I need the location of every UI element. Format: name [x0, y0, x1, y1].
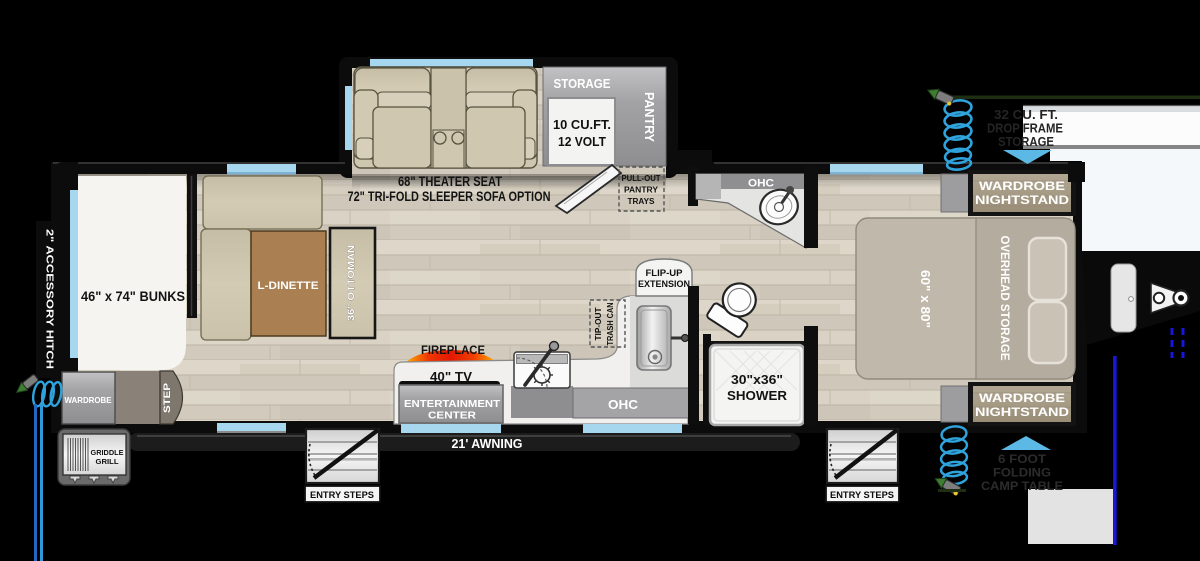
svg-text:PANTRY: PANTRY: [624, 185, 658, 195]
svg-text:TIP-OUT: TIP-OUT: [593, 307, 603, 341]
svg-text:ENTERTAINMENT: ENTERTAINMENT: [404, 399, 500, 410]
svg-text:SHOWER: SHOWER: [727, 389, 787, 403]
svg-text:STEP: STEP: [162, 382, 173, 413]
svg-text:PULL-OUT: PULL-OUT: [622, 173, 662, 183]
svg-text:FIREPLACE: FIREPLACE: [421, 343, 485, 357]
svg-text:DROP FRAME: DROP FRAME: [987, 122, 1063, 136]
svg-text:GRIDDLE: GRIDDLE: [91, 448, 124, 457]
svg-text:68" THEATER SEAT: 68" THEATER SEAT: [398, 174, 503, 189]
svg-text:GRILL: GRILL: [96, 457, 119, 466]
svg-text:WARDROBE: WARDROBE: [65, 396, 113, 405]
svg-text:STORAGE: STORAGE: [554, 77, 611, 91]
svg-text:46" x 74" BUNKS: 46" x 74" BUNKS: [81, 289, 185, 304]
svg-text:36" OTTOMAN: 36" OTTOMAN: [346, 245, 357, 321]
svg-text:30"x36": 30"x36": [731, 373, 783, 387]
svg-text:6 FOOT: 6 FOOT: [998, 452, 1047, 466]
svg-text:EXTENSION: EXTENSION: [638, 279, 690, 289]
svg-text:NIGHTSTAND: NIGHTSTAND: [975, 407, 1069, 419]
svg-text:FLIP-UP: FLIP-UP: [646, 268, 683, 278]
svg-text:OHC: OHC: [748, 178, 774, 190]
svg-text:WARDROBE: WARDROBE: [979, 393, 1065, 405]
svg-text:TRAYS: TRAYS: [628, 196, 655, 206]
svg-text:72" TRI-FOLD SLEEPER SOFA OPTI: 72" TRI-FOLD SLEEPER SOFA OPTION: [348, 189, 551, 204]
svg-text:OHC: OHC: [608, 397, 639, 412]
svg-text:ENTRY STEPS: ENTRY STEPS: [830, 490, 895, 501]
svg-text:10 CU.FT.: 10 CU.FT.: [553, 118, 611, 132]
svg-text:32 CU. FT.: 32 CU. FT.: [994, 108, 1058, 122]
svg-text:NIGHTSTAND: NIGHTSTAND: [975, 195, 1069, 207]
svg-text:STORAGE: STORAGE: [998, 135, 1054, 149]
svg-text:12 VOLT: 12 VOLT: [558, 135, 606, 149]
svg-text:60" x 80": 60" x 80": [918, 270, 933, 328]
svg-text:PANTRY: PANTRY: [642, 92, 656, 143]
svg-text:FOLDING: FOLDING: [993, 466, 1051, 480]
svg-text:CENTER: CENTER: [428, 411, 477, 422]
svg-text:2" ACCESSORY HITCH: 2" ACCESSORY HITCH: [44, 229, 56, 369]
svg-text:CAMP TABLE: CAMP TABLE: [981, 479, 1063, 493]
svg-text:WARDROBE: WARDROBE: [979, 181, 1065, 193]
svg-text:L-DINETTE: L-DINETTE: [258, 280, 319, 292]
svg-text:21' AWNING: 21' AWNING: [452, 437, 523, 451]
svg-text:ENTRY STEPS: ENTRY STEPS: [310, 490, 375, 501]
svg-text:OVERHEAD STORAGE: OVERHEAD STORAGE: [998, 236, 1012, 361]
svg-text:TRASH CAN: TRASH CAN: [605, 303, 615, 346]
